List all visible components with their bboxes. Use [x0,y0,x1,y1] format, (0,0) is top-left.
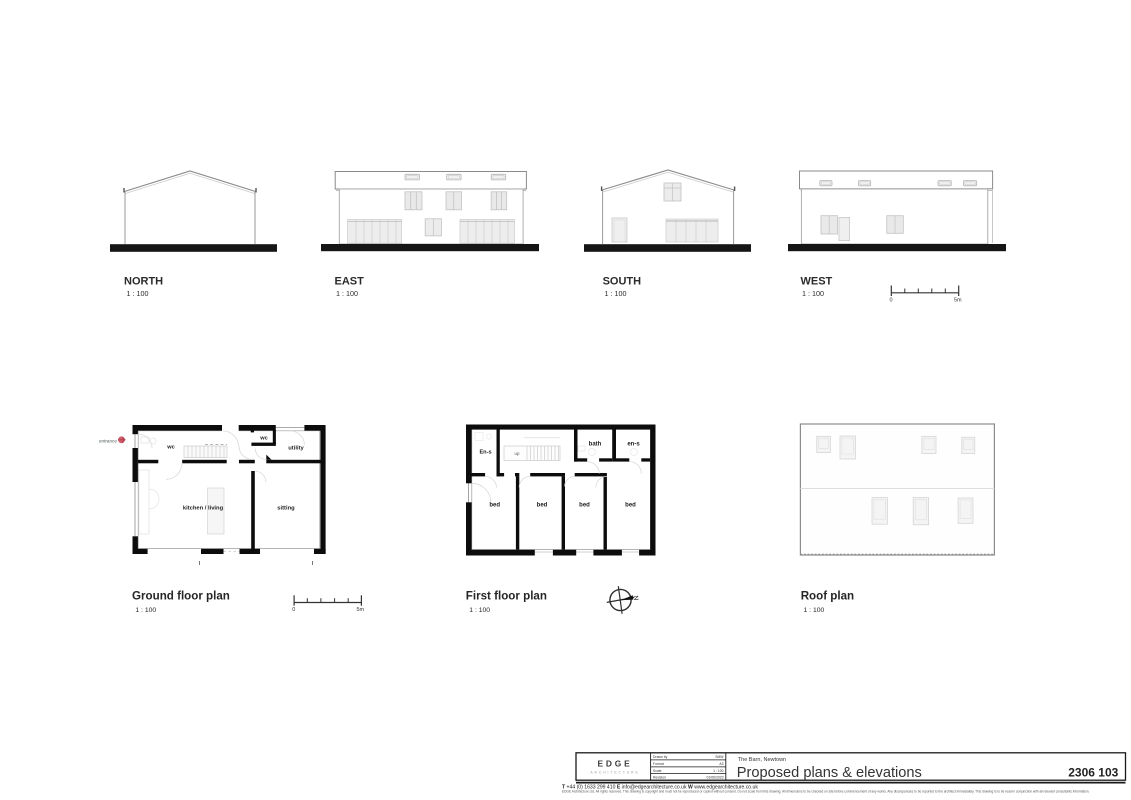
svg-text:EAST: EAST [335,275,365,287]
svg-text:1 : 100: 1 : 100 [336,289,358,298]
svg-text:SOUTH: SOUTH [603,275,642,287]
svg-text:1 : 100: 1 : 100 [127,289,149,298]
svg-text:Revision: Revision [653,776,666,780]
svg-text:1 : 100: 1 : 100 [605,289,627,298]
svg-text:en-s: en-s [627,442,640,448]
svg-text:Proposed plans & elevations: Proposed plans & elevations [737,765,922,781]
svg-text:01/06/2023: 01/06/2023 [707,776,724,780]
svg-text:entrance: entrance [99,439,117,444]
svg-text:1 : 100: 1 : 100 [802,289,824,298]
svg-text:NORTH: NORTH [124,275,163,287]
svg-text:kitchen / living: kitchen / living [183,505,224,511]
svg-text:bed: bed [625,502,636,508]
svg-text:Drawn by: Drawn by [653,755,668,759]
svg-text:Scale: Scale [653,769,662,773]
svg-text:Ground floor plan: Ground floor plan [132,590,230,603]
svg-text:1 : 100: 1 : 100 [135,607,156,614]
svg-text:bath: bath [589,442,602,448]
svg-text:2306 103: 2306 103 [1068,766,1118,780]
svg-text:0: 0 [292,607,295,613]
svg-text:Format: Format [653,762,664,766]
svg-text:The Barn, Newtown: The Barn, Newtown [738,757,786,763]
svg-text:1 : 100: 1 : 100 [469,607,490,614]
svg-text:bed: bed [489,502,500,508]
svg-text:wc: wc [166,444,174,450]
svg-text:Roof plan: Roof plan [801,590,854,603]
svg-text:ARCHITECTURE: ARCHITECTURE [590,770,639,774]
svg-text:bed: bed [579,502,590,508]
svg-text:En-s: En-s [479,450,491,456]
svg-text:wc: wc [259,435,267,441]
svg-text:EDGE Architecture Ltd. All rig: EDGE Architecture Ltd. All rights reserv… [562,789,1090,793]
svg-text:up: up [515,451,520,456]
svg-text:5m: 5m [357,607,365,613]
svg-text:utility: utility [288,445,304,451]
svg-text:EDGE: EDGE [598,759,633,769]
svg-text:bed: bed [537,502,548,508]
svg-text:First floor plan: First floor plan [466,590,547,603]
svg-text:5m: 5m [954,298,962,304]
svg-text:SMW: SMW [715,755,724,759]
svg-text:A3: A3 [719,762,723,766]
svg-text:WEST: WEST [801,275,833,287]
svg-text:0: 0 [890,298,893,304]
svg-text:sitting: sitting [277,505,295,511]
svg-text:1 : 100: 1 : 100 [804,607,825,614]
svg-text:1 : 100: 1 : 100 [713,769,723,773]
